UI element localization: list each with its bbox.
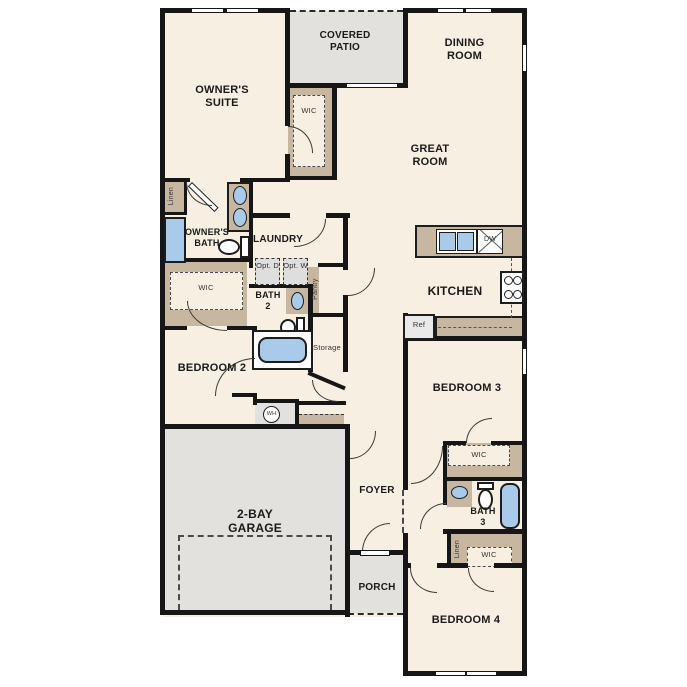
wall: [308, 313, 348, 317]
burner: [513, 290, 522, 299]
label-laundry: LAUNDRY: [249, 234, 307, 246]
label-opt-w: Opt. W: [283, 262, 308, 271]
wall: [240, 178, 290, 182]
window: [522, 44, 527, 72]
window: [191, 8, 224, 13]
label-dining-room: DINING ROOM: [437, 37, 492, 63]
wall: [318, 263, 348, 267]
wall: [285, 8, 290, 126]
wall: [437, 563, 468, 568]
wall: [160, 326, 187, 330]
wall: [160, 8, 165, 615]
wall: [160, 424, 350, 429]
front-door-leaf: [360, 550, 390, 556]
wall: [253, 399, 299, 403]
wall: [295, 401, 346, 405]
wall: [343, 295, 348, 372]
label-wic-bed3: WIC: [466, 451, 492, 460]
label-great-room: GREAT ROOM: [404, 143, 456, 169]
wall: [160, 8, 290, 13]
label-pantry: Pantry: [312, 267, 320, 311]
label-bath-2: BATH 2: [252, 290, 284, 311]
label-wic-bed2: WIC: [193, 284, 219, 293]
wall: [494, 563, 524, 568]
window: [522, 348, 527, 375]
label-garage: 2-BAY GARAGE: [222, 507, 288, 535]
burner: [504, 290, 513, 299]
wall: [285, 176, 337, 180]
label-bedroom-2: BEDROOM 2: [172, 362, 252, 375]
label-owners-suite: OWNER'S SUITE: [191, 84, 253, 110]
label-opt-d: Opt. D: [255, 262, 280, 271]
wall: [522, 8, 527, 676]
wall: [403, 8, 408, 88]
window: [437, 8, 464, 13]
wall: [403, 533, 408, 676]
bath3-tub: [500, 483, 520, 529]
label-wic-bed4: WIC: [476, 551, 502, 560]
label-owners-bath: OWNER'S BATH: [181, 227, 233, 248]
wall: [332, 83, 337, 180]
burner: [513, 276, 522, 285]
label-bath-3: BATH 3: [468, 506, 498, 527]
wall: [249, 213, 290, 218]
wall: [443, 441, 447, 481]
label-wic-owner: WIC: [296, 107, 322, 116]
label-porch: PORCH: [353, 582, 401, 594]
window: [226, 8, 259, 13]
label-dw: DW: [477, 236, 503, 244]
window: [465, 8, 492, 13]
owners-sink: [233, 186, 247, 205]
patio-open-edge: [290, 10, 403, 12]
window: [435, 671, 466, 676]
sliding-door: [346, 83, 398, 88]
label-bedroom-4: BEDROOM 4: [426, 614, 506, 627]
wall: [443, 477, 447, 505]
counter-dash-horizontal: [438, 327, 512, 328]
wall: [160, 610, 350, 615]
garage-door-zone: [178, 535, 332, 610]
kitchen-sink-basin: [439, 232, 456, 251]
label-foyer: FOYER: [354, 485, 400, 497]
label-bedroom-3: BEDROOM 3: [427, 382, 507, 395]
floor-plan: COVERED PATIO DINING ROOM OWNER'S SUITE …: [0, 0, 687, 687]
bath2-tub: [258, 337, 307, 363]
label-linen-hall: Linen: [454, 529, 462, 569]
kitchen-sink-basin: [457, 232, 474, 251]
burner: [504, 276, 513, 285]
label-ref: Ref: [404, 321, 434, 330]
label-covered-patio: COVERED PATIO: [315, 30, 375, 54]
bath3-sink: [451, 486, 468, 499]
porch-open-edge: [348, 613, 403, 615]
foyer-opening-dash: [402, 490, 404, 533]
label-storage: Storage: [311, 344, 343, 353]
window: [466, 671, 497, 676]
wall: [345, 460, 350, 617]
label-wh: WH: [263, 411, 280, 417]
label-kitchen: KITCHEN: [424, 284, 486, 298]
wall: [345, 550, 361, 555]
owners-sink: [233, 208, 247, 227]
wall: [443, 477, 524, 481]
wall: [343, 213, 348, 270]
wall: [491, 441, 524, 445]
exterior-mask: [158, 617, 403, 687]
bath2-sink: [291, 292, 304, 310]
range-stove: [500, 271, 524, 304]
label-linen-owner: Linen: [168, 176, 176, 216]
